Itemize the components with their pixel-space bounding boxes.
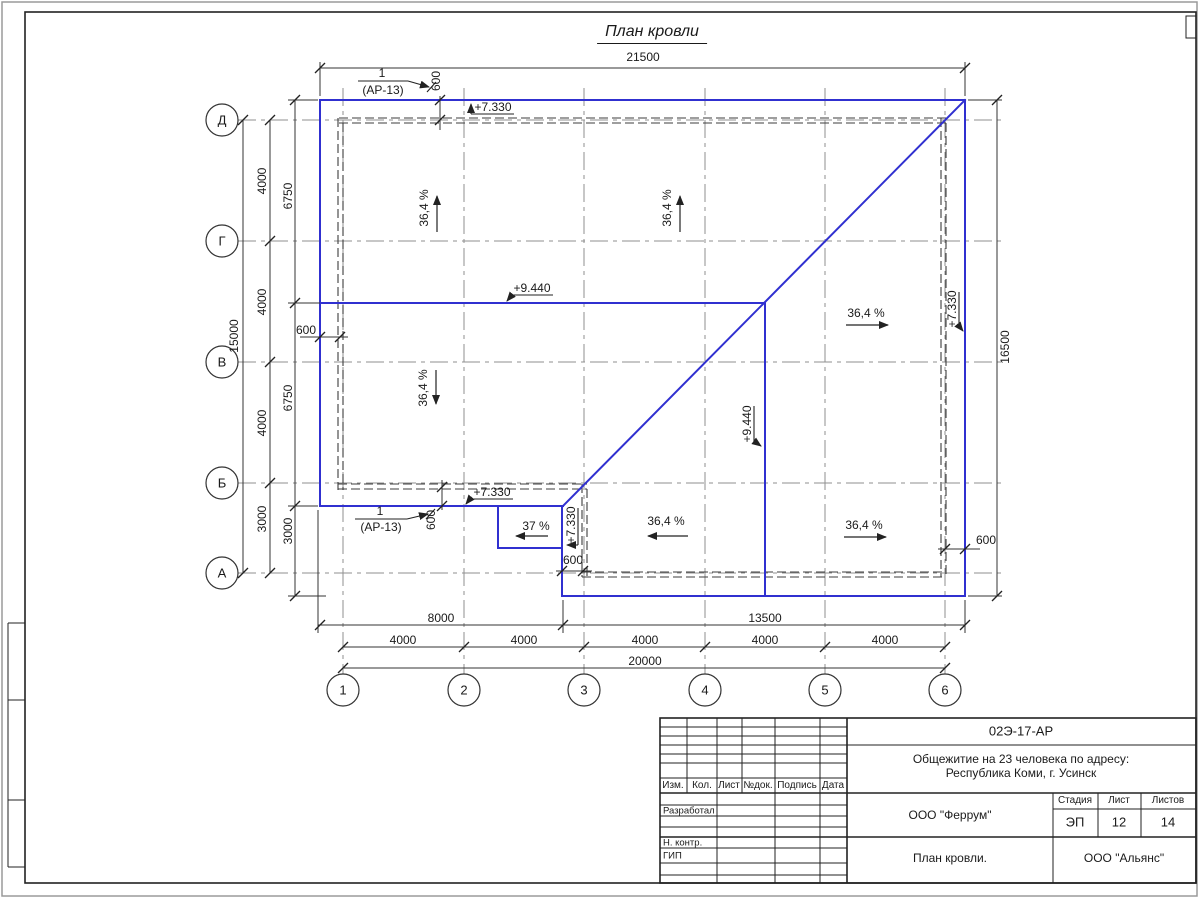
axis-number-6: 6	[941, 684, 948, 697]
elevation-eave-bottom-left: +7.330	[473, 486, 510, 498]
elevation-ridge-rotated: +9.440	[741, 405, 753, 442]
dim-axis-span-5: 4000	[872, 634, 899, 646]
dim-left-span-4: 3000	[256, 506, 268, 533]
axis-number-3: 3	[580, 684, 587, 697]
slope-label-mid-right: 36,4 %	[847, 307, 884, 319]
dim-left-inner-2: 6750	[282, 385, 294, 412]
titleblock-project-line2: Республика Коми, г. Усинск	[946, 767, 1097, 779]
dim-overhang-bottom-left: 600	[425, 510, 437, 530]
dim-bottom-total: 20000	[628, 655, 661, 667]
dim-left-inner-1: 6750	[282, 183, 294, 210]
titleblock-stage-label: Стадия	[1058, 796, 1092, 806]
dim-left-span-2: 4000	[256, 289, 268, 316]
slope-label-top-left: 36,4 %	[418, 189, 430, 226]
corner-stamp-box	[1186, 16, 1196, 38]
titleblock-col-izm: Изм.	[662, 781, 683, 791]
detail-marker-leaders	[355, 81, 436, 519]
axis-number-4: 4	[701, 684, 708, 697]
axis-letter-a: А	[218, 567, 227, 580]
axis-grid-lines	[238, 88, 1002, 674]
titleblock-sheet-value: 12	[1112, 816, 1126, 829]
frame-left-column	[8, 623, 25, 867]
elevation-leaders	[466, 104, 963, 545]
titleblock-role-ncontrol: Н. контр.	[663, 838, 702, 848]
axis-number-2: 2	[460, 684, 467, 697]
sheet-title: План кровли	[597, 24, 707, 44]
detail-marker-top-number: 1	[379, 67, 386, 79]
titleblock-company: ООО "Феррум"	[909, 809, 992, 821]
drawing-sheet: План кровли 21500 16500 15000 4000 4000 …	[0, 0, 1200, 900]
titleblock-col-data: Дата	[822, 781, 844, 791]
dim-left-inner-3: 3000	[282, 518, 294, 545]
titleblock-contractor: ООО "Альянс"	[1084, 852, 1164, 864]
dim-bottom-span-2: 13500	[748, 612, 781, 624]
dim-overhang-right: 600	[976, 534, 996, 546]
dim-axis-span-2: 4000	[511, 634, 538, 646]
dim-right-total: 16500	[999, 330, 1011, 363]
dim-axis-span-1: 4000	[390, 634, 417, 646]
titleblock-col-kol: Кол.	[692, 781, 712, 791]
titleblock-col-dok: №док.	[743, 781, 772, 791]
titleblock-sheets-value: 14	[1161, 816, 1175, 829]
dim-bottom-span-1: 8000	[428, 612, 455, 624]
slope-label-mid-left: 36,4 %	[417, 369, 429, 406]
slope-label-porch: 37 %	[522, 520, 549, 532]
titleblock-sheet-label: Лист	[1108, 796, 1130, 806]
dim-left-span-1: 4000	[256, 168, 268, 195]
elevation-ridge: +9.440	[513, 282, 550, 294]
slope-label-top-center: 36,4 %	[661, 189, 673, 226]
dim-overhang-left: 600	[296, 324, 316, 336]
titleblock-drawing-title: План кровли.	[913, 852, 987, 864]
dim-top-total: 21500	[626, 51, 659, 63]
titleblock-role-gip: ГИП	[663, 851, 682, 861]
titleblock-stage-value: ЭП	[1066, 816, 1085, 829]
dim-overhang-top: 600	[430, 71, 442, 91]
axis-number-1: 1	[339, 684, 346, 697]
elevation-eave-right: +7.330	[946, 290, 958, 327]
dim-left-span-3: 4000	[256, 410, 268, 437]
titleblock-project-line1: Общежитие на 23 человека по адресу:	[913, 753, 1129, 765]
detail-marker-bottom-number: 1	[377, 505, 384, 517]
elevation-eave-top: +7.330	[474, 101, 511, 113]
slope-label-bottom-center: 36,4 %	[647, 515, 684, 527]
axis-letter-v: В	[218, 356, 227, 369]
titleblock-col-podpis: Подпись	[777, 781, 817, 791]
dim-axis-span-4: 4000	[752, 634, 779, 646]
axis-letter-g: Г	[218, 235, 225, 248]
dim-axis-span-3: 4000	[632, 634, 659, 646]
dim-left-total: 15000	[228, 319, 240, 352]
wall-dashed-lines	[338, 118, 946, 577]
titleblock-col-list: Лист	[718, 781, 740, 791]
detail-marker-bottom-ref: (АР-13)	[360, 521, 401, 533]
slope-label-bottom-right: 36,4 %	[845, 519, 882, 531]
axis-number-5: 5	[821, 684, 828, 697]
titleblock-doc-number: 02Э-17-АР	[989, 725, 1053, 738]
dimension-ticks	[238, 63, 1002, 673]
elevation-eave-notch: +7.330	[565, 506, 577, 543]
dim-overhang-notch: 600	[563, 554, 583, 566]
titleblock-role-developer: Разработал	[663, 806, 715, 816]
titleblock-sheets-label: Листов	[1152, 796, 1185, 806]
detail-marker-top-ref: (АР-13)	[362, 84, 403, 96]
axis-letter-b: Б	[218, 477, 227, 490]
axis-letter-d: Д	[218, 114, 227, 127]
